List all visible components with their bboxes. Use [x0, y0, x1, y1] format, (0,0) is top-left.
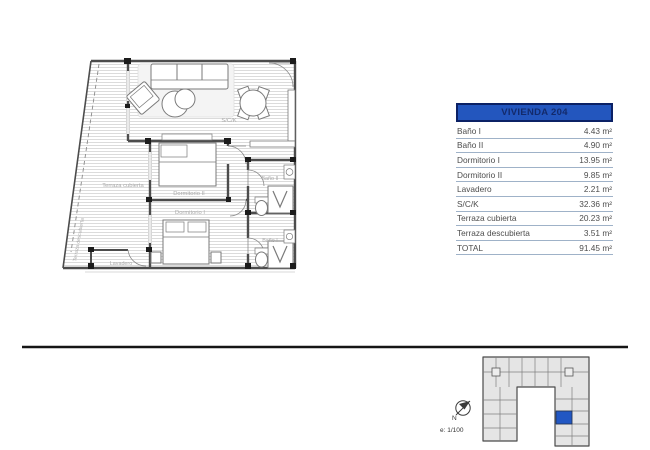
highlighted-unit — [556, 411, 572, 424]
table-row: Baño I4.43 m² — [456, 124, 613, 139]
bed-dormitorio-ii — [159, 143, 216, 186]
table-row: Baño II4.90 m² — [456, 139, 613, 154]
row-value: 4.43 m² — [584, 126, 612, 136]
area-table: VIVIENDA 204 Baño I4.43 m² Baño II4.90 m… — [456, 103, 613, 255]
row-label: Lavadero — [457, 184, 492, 194]
row-value: 13.95 m² — [579, 155, 612, 165]
label-terraza-cubierta: Terraza cubierta — [102, 183, 144, 189]
row-label: Dormitorio II — [457, 170, 502, 180]
shower-icon — [268, 241, 293, 268]
label-dormitorio-i: Dormitorio I — [175, 210, 205, 216]
sink-icon — [284, 165, 295, 179]
stair-core — [492, 368, 500, 376]
sofa — [151, 64, 228, 89]
table-row: S/C/K32.36 m² — [456, 197, 613, 212]
row-label: S/C/K — [457, 199, 479, 209]
row-label: TOTAL — [457, 243, 483, 253]
table-row: Terraza cubierta20.23 m² — [456, 212, 613, 227]
row-value: 20.23 m² — [579, 213, 612, 223]
table-row: Terraza descubierta3.51 m² — [456, 226, 613, 241]
table-row: TOTAL91.45 m² — [456, 241, 613, 256]
sideboard — [162, 134, 212, 140]
sink-icon — [284, 230, 295, 243]
stair-core — [565, 368, 573, 376]
table-row: Lavadero2.21 m² — [456, 182, 613, 197]
label-sck: S/C/K — [221, 118, 236, 124]
label-lavadero: Lavadero — [110, 261, 132, 267]
table-row: Dormitorio I13.95 m² — [456, 153, 613, 168]
coffee-table-2 — [175, 89, 195, 109]
table-rows: Baño I4.43 m² Baño II4.90 m² Dormitorio … — [456, 124, 613, 255]
row-label: Dormitorio I — [457, 155, 500, 165]
table-title: VIVIENDA 204 — [456, 103, 613, 122]
nightstand — [151, 252, 161, 263]
row-label: Baño I — [457, 126, 481, 136]
north-label: N — [452, 415, 457, 422]
row-value: 9.85 m² — [584, 170, 612, 180]
floor-plan: S/C/K Dormitorio II Dormitorio I Baño II… — [63, 58, 296, 272]
row-value: 3.51 m² — [584, 228, 612, 238]
row-value: 91.45 m² — [579, 243, 612, 253]
label-dormitorio-ii: Dormitorio II — [173, 191, 205, 197]
site-plan — [483, 357, 589, 446]
row-value: 32.36 m² — [579, 199, 612, 209]
table-row: Dormitorio II9.85 m² — [456, 168, 613, 183]
row-label: Baño II — [457, 140, 483, 150]
bed-dormitorio-i — [163, 220, 209, 264]
toilet-icon — [255, 248, 268, 267]
dining-table — [238, 86, 270, 120]
row-label: Terraza cubierta — [457, 213, 517, 223]
shower-icon — [268, 186, 293, 213]
label-bano-ii: Baño II — [261, 176, 278, 182]
floor-plan-sheet: S/C/K Dormitorio II Dormitorio I Baño II… — [0, 0, 650, 450]
row-value: 4.90 m² — [584, 140, 612, 150]
scale-label: e: 1/100 — [440, 427, 464, 434]
nightstand — [211, 252, 221, 263]
toilet-icon — [255, 197, 268, 216]
row-label: Terraza descubierta — [457, 228, 530, 238]
row-value: 2.21 m² — [584, 184, 612, 194]
north-compass-icon — [456, 401, 470, 415]
label-bano-i: Baño I — [262, 238, 278, 244]
